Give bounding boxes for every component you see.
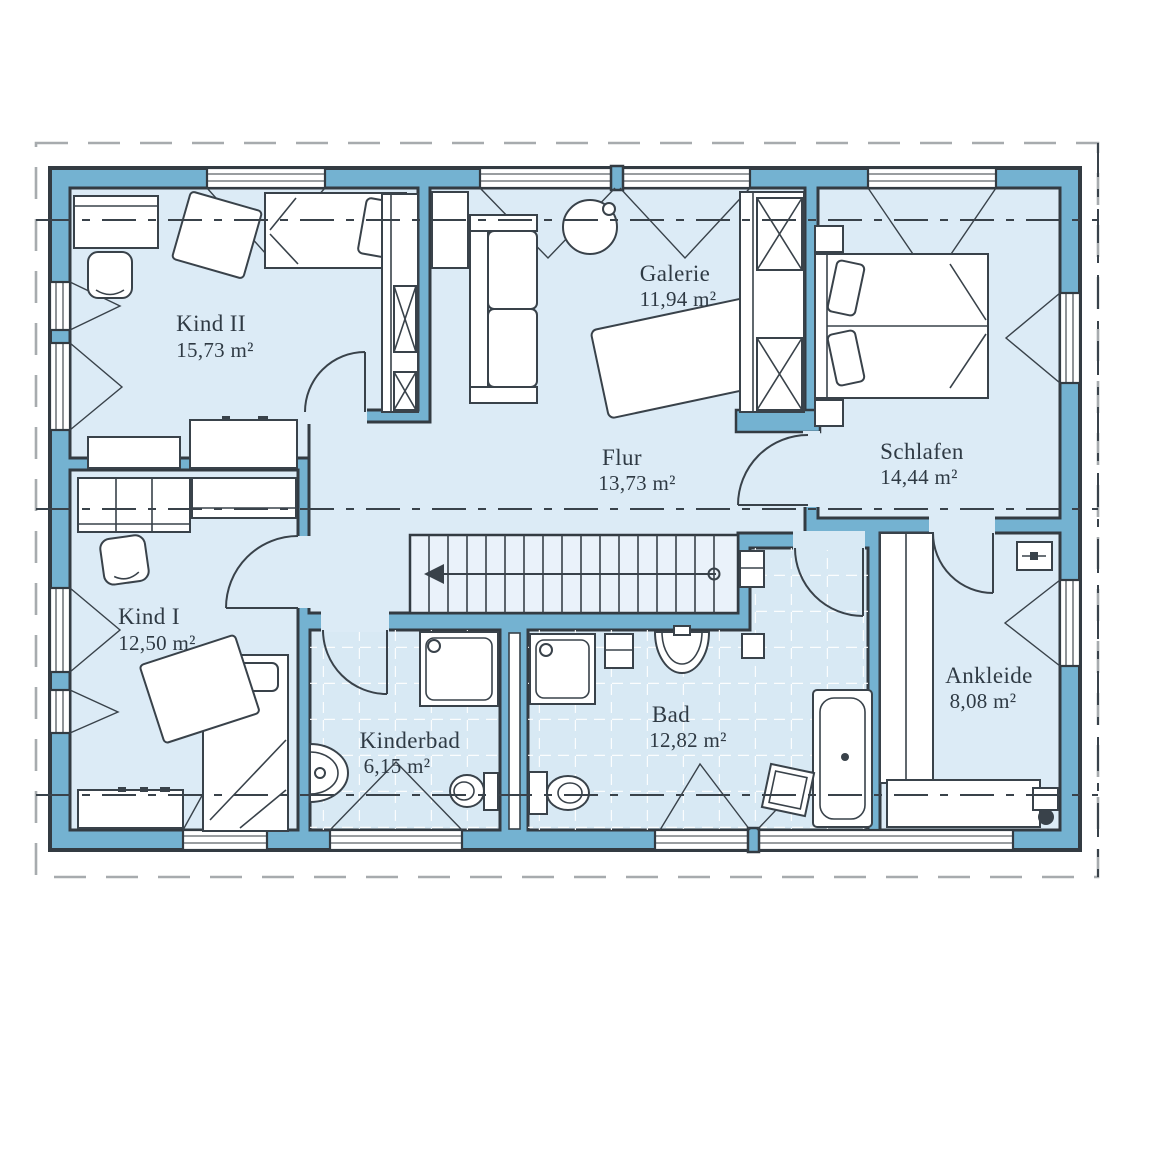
area-schlafen: 14,44 m² bbox=[880, 465, 958, 489]
label-ankleide: Ankleide bbox=[945, 663, 1033, 688]
closet-base-wall bbox=[736, 410, 820, 432]
laundry-basket bbox=[762, 764, 814, 816]
toilet-tank bbox=[529, 772, 547, 814]
label-galerie: Galerie bbox=[640, 261, 710, 286]
sideboard bbox=[88, 437, 180, 468]
window-mullion bbox=[611, 166, 623, 190]
label-flur: Flur bbox=[602, 445, 642, 470]
sofa-armrest bbox=[470, 215, 537, 231]
nightstand bbox=[815, 400, 843, 426]
sofa-back bbox=[470, 215, 488, 403]
sideboard bbox=[192, 478, 296, 518]
shelf bbox=[432, 192, 468, 268]
area-flur: 13,73 m² bbox=[598, 471, 676, 495]
sofa-cushion bbox=[488, 231, 537, 309]
window-mullion bbox=[748, 828, 759, 852]
desk-chair bbox=[88, 252, 132, 298]
floor-plan: Kind II 15,73 m² Galerie 11,94 m² Schlaf… bbox=[0, 0, 1170, 1170]
cabinet bbox=[742, 634, 764, 658]
label-kinderbad: Kinderbad bbox=[360, 728, 461, 753]
area-kinderbad: 6,15 m² bbox=[364, 754, 431, 778]
shaft-box bbox=[1033, 788, 1058, 810]
shower bbox=[530, 634, 595, 704]
cabinet bbox=[605, 634, 633, 668]
label-schlafen: Schlafen bbox=[880, 439, 964, 464]
label-kind-ii: Kind II bbox=[176, 311, 246, 336]
installation-shaft bbox=[509, 633, 520, 829]
area-ankleide: 8,08 m² bbox=[950, 689, 1017, 713]
area-galerie: 11,94 m² bbox=[640, 287, 717, 311]
desk bbox=[74, 196, 158, 248]
nightstand bbox=[815, 226, 843, 252]
sideboard bbox=[887, 780, 1040, 827]
area-bad: 12,82 m² bbox=[649, 728, 727, 752]
toilet-tank bbox=[484, 773, 498, 810]
sofa-armrest bbox=[470, 387, 537, 403]
cabinet bbox=[740, 551, 764, 587]
sideboard bbox=[190, 420, 297, 468]
toilet bbox=[450, 775, 484, 807]
label-bad: Bad bbox=[652, 702, 690, 727]
staircase bbox=[410, 535, 738, 613]
label-kind-i: Kind I bbox=[118, 604, 180, 629]
built-in-wardrobe bbox=[740, 192, 804, 412]
sofa-cushion bbox=[488, 309, 537, 387]
area-kind-ii: 15,73 m² bbox=[176, 338, 254, 362]
area-kind-i: 12,50 m² bbox=[118, 631, 196, 655]
furniture-schlafen bbox=[815, 226, 988, 426]
vent-pipe bbox=[1038, 809, 1054, 825]
